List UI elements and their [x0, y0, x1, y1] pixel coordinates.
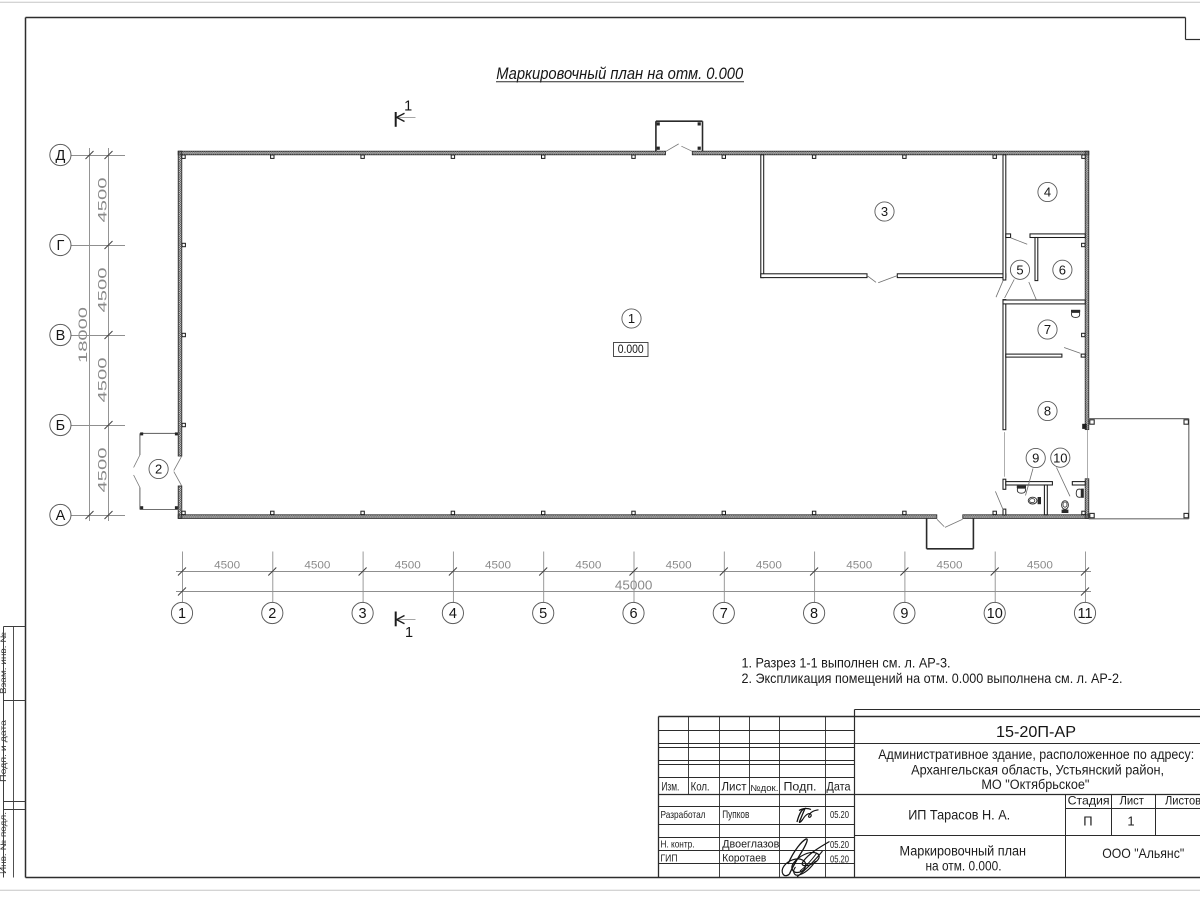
svg-text:Пупков: Пупков: [722, 809, 749, 821]
svg-text:Дата: Дата: [827, 780, 851, 794]
svg-text:1: 1: [404, 99, 412, 115]
svg-text:10: 10: [1053, 450, 1067, 465]
svg-text:4500: 4500: [756, 560, 782, 572]
svg-text:Подп.: Подп.: [784, 780, 817, 794]
svg-text:Инв. № подл.: Инв. № подл.: [0, 812, 8, 874]
svg-text:05.20: 05.20: [830, 810, 849, 821]
svg-text:Листов: Листов: [1165, 794, 1200, 807]
svg-text:8: 8: [1044, 404, 1051, 419]
svg-text:Административное здание, распо: Административное здание, расположенное п…: [878, 747, 1194, 763]
svg-text:18000: 18000: [77, 306, 90, 363]
svg-text:Лист: Лист: [722, 780, 747, 794]
svg-text:7: 7: [1044, 322, 1051, 337]
svg-text:5: 5: [539, 606, 547, 622]
svg-text:4500: 4500: [395, 560, 421, 572]
svg-text:4500: 4500: [575, 560, 601, 572]
svg-text:0.000: 0.000: [618, 344, 644, 356]
svg-text:1: 1: [405, 625, 413, 641]
svg-text:Д: Д: [55, 148, 65, 164]
svg-text:Маркировочный план на отм. 0.0: Маркировочный план на отм. 0.000: [496, 65, 743, 83]
svg-text:4500: 4500: [97, 447, 110, 493]
svg-text:на отм. 0.000.: на отм. 0.000.: [926, 859, 1002, 875]
svg-text:05.20: 05.20: [830, 840, 849, 851]
svg-text:4500: 4500: [666, 560, 692, 572]
svg-text:6: 6: [629, 606, 637, 622]
svg-text:8: 8: [810, 606, 818, 622]
svg-text:3: 3: [359, 606, 367, 622]
svg-text:9: 9: [900, 606, 908, 622]
svg-text:4500: 4500: [937, 560, 963, 572]
svg-text:4: 4: [1044, 185, 1051, 200]
svg-text:Лист: Лист: [1119, 794, 1144, 807]
svg-text:45000: 45000: [615, 578, 653, 593]
svg-text:Двоеглазов: Двоеглазов: [722, 839, 779, 851]
svg-text:1: 1: [628, 311, 635, 326]
svg-text:4500: 4500: [304, 560, 330, 572]
svg-text:П: П: [1083, 813, 1092, 828]
svg-text:9: 9: [1032, 451, 1039, 466]
svg-text:Подп. и дата: Подп. и дата: [0, 719, 8, 782]
svg-text:4: 4: [449, 606, 457, 622]
svg-text:Стадия: Стадия: [1068, 794, 1110, 807]
svg-text:4500: 4500: [97, 267, 110, 313]
svg-text:Маркировочный план: Маркировочный план: [900, 844, 1027, 860]
svg-text:ИП Тарасов Н. А.: ИП Тарасов Н. А.: [908, 808, 1010, 823]
svg-text:2: 2: [268, 606, 276, 622]
svg-text:05.20: 05.20: [830, 854, 849, 865]
svg-text:ООО "Альянс": ООО "Альянс": [1102, 845, 1184, 861]
svg-text:1: 1: [1127, 813, 1134, 828]
svg-text:4500: 4500: [97, 177, 110, 223]
svg-text:4500: 4500: [97, 357, 110, 403]
svg-text:В: В: [56, 328, 66, 344]
svg-text:№док.: №док.: [750, 783, 778, 793]
svg-text:15-20П-АР: 15-20П-АР: [996, 724, 1076, 741]
svg-text:Г: Г: [56, 238, 64, 254]
svg-text:10: 10: [987, 606, 1003, 622]
svg-text:2. Экспликация помещений на от: 2. Экспликация помещений на отм. 0.000 в…: [742, 671, 1123, 686]
svg-text:А: А: [56, 508, 66, 524]
svg-text:Взам. инв. №: Взам. инв. №: [0, 631, 8, 694]
svg-text:ГИП: ГИП: [661, 853, 678, 865]
svg-text:11: 11: [1077, 606, 1092, 622]
svg-text:4500: 4500: [846, 560, 872, 572]
svg-text:5: 5: [1016, 262, 1023, 277]
svg-text:Б: Б: [56, 418, 66, 434]
svg-text:1. Разрез 1-1 выполнен см. л.: 1. Разрез 1-1 выполнен см. л. АР-3.: [742, 656, 951, 671]
svg-text:7: 7: [720, 606, 728, 622]
svg-text:4500: 4500: [1027, 560, 1053, 572]
svg-text:4500: 4500: [214, 560, 240, 572]
svg-text:Разработал: Разработал: [661, 809, 706, 821]
svg-text:Кол.: Кол.: [691, 780, 710, 794]
svg-text:1: 1: [178, 606, 186, 622]
svg-text:3: 3: [881, 204, 888, 219]
svg-text:МО "Октябрьское": МО "Октябрьское": [981, 777, 1089, 793]
svg-text:2: 2: [155, 462, 162, 477]
svg-text:Коротаев: Коротаев: [722, 853, 766, 865]
svg-text:Н. контр.: Н. контр.: [661, 839, 695, 851]
svg-text:Изм.: Изм.: [661, 780, 679, 794]
svg-text:4500: 4500: [485, 560, 511, 572]
svg-text:6: 6: [1059, 262, 1066, 277]
